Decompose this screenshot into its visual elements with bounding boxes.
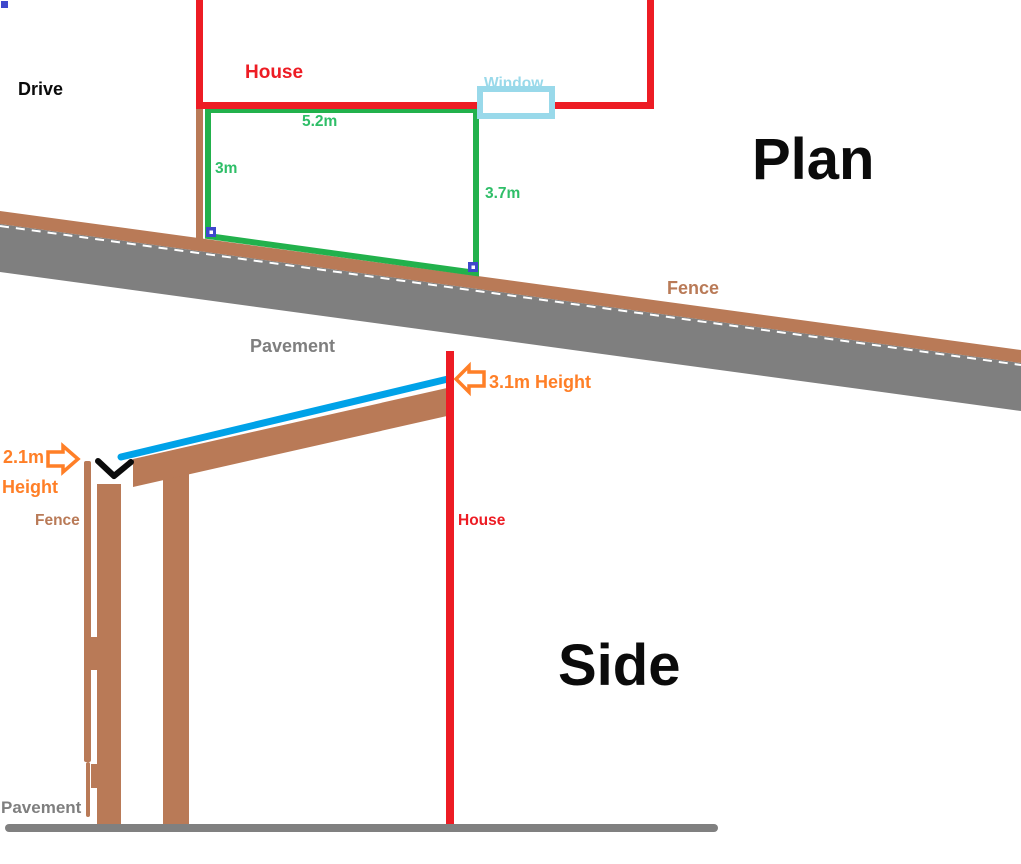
side-support-post bbox=[163, 470, 189, 825]
plan-house-wall-left bbox=[196, 0, 203, 106]
plan-window-label: Window bbox=[484, 76, 543, 92]
side-house-label: House bbox=[458, 513, 505, 529]
plan-house-wall-right bbox=[647, 0, 654, 106]
side-house-wall bbox=[446, 351, 454, 828]
side-fence-batten bbox=[84, 461, 91, 762]
side-fence-batten-foot bbox=[86, 762, 90, 817]
eave-height-arrow-icon bbox=[48, 446, 78, 472]
side-fence-rail-upper bbox=[91, 637, 97, 670]
dim-left-depth: 3m bbox=[215, 161, 237, 177]
dim-right-depth: 3.7m bbox=[485, 186, 520, 202]
dim-top-width: 5.2m bbox=[302, 114, 337, 130]
side-pavement-label: Pavement bbox=[1, 799, 81, 816]
anchor-handle-bottom-right[interactable] bbox=[468, 262, 478, 272]
side-view-title: Side bbox=[558, 637, 681, 695]
side-roof-rafter bbox=[133, 388, 447, 487]
gutter-junction-mark-icon bbox=[98, 461, 131, 476]
side-fence-rail-lower bbox=[91, 764, 97, 788]
eave-height-value: 2.1m bbox=[3, 448, 44, 466]
plan-house-wall-front bbox=[196, 102, 654, 109]
paint-canvas: Drive House Window 5.2m 3m 3.7m Plan Fen… bbox=[0, 0, 1021, 864]
eave-height-word: Height bbox=[2, 478, 58, 496]
wall-height-label: 3.1m Height bbox=[489, 373, 591, 391]
canvas-corner-mark bbox=[1, 1, 8, 8]
side-fence-board bbox=[97, 484, 121, 825]
plan-drive-fence-line bbox=[196, 106, 203, 242]
plan-view-title: Plan bbox=[752, 131, 875, 189]
side-fence-label: Fence bbox=[35, 513, 80, 529]
plan-house-label: House bbox=[245, 63, 303, 82]
plan-window-rect bbox=[480, 89, 552, 116]
plan-fence-label: Fence bbox=[667, 279, 719, 297]
plan-pavement-label: Pavement bbox=[250, 337, 335, 355]
anchor-handle-bottom-left[interactable] bbox=[206, 227, 216, 237]
drive-label: Drive bbox=[18, 80, 63, 98]
wall-height-arrow-icon bbox=[456, 366, 484, 392]
